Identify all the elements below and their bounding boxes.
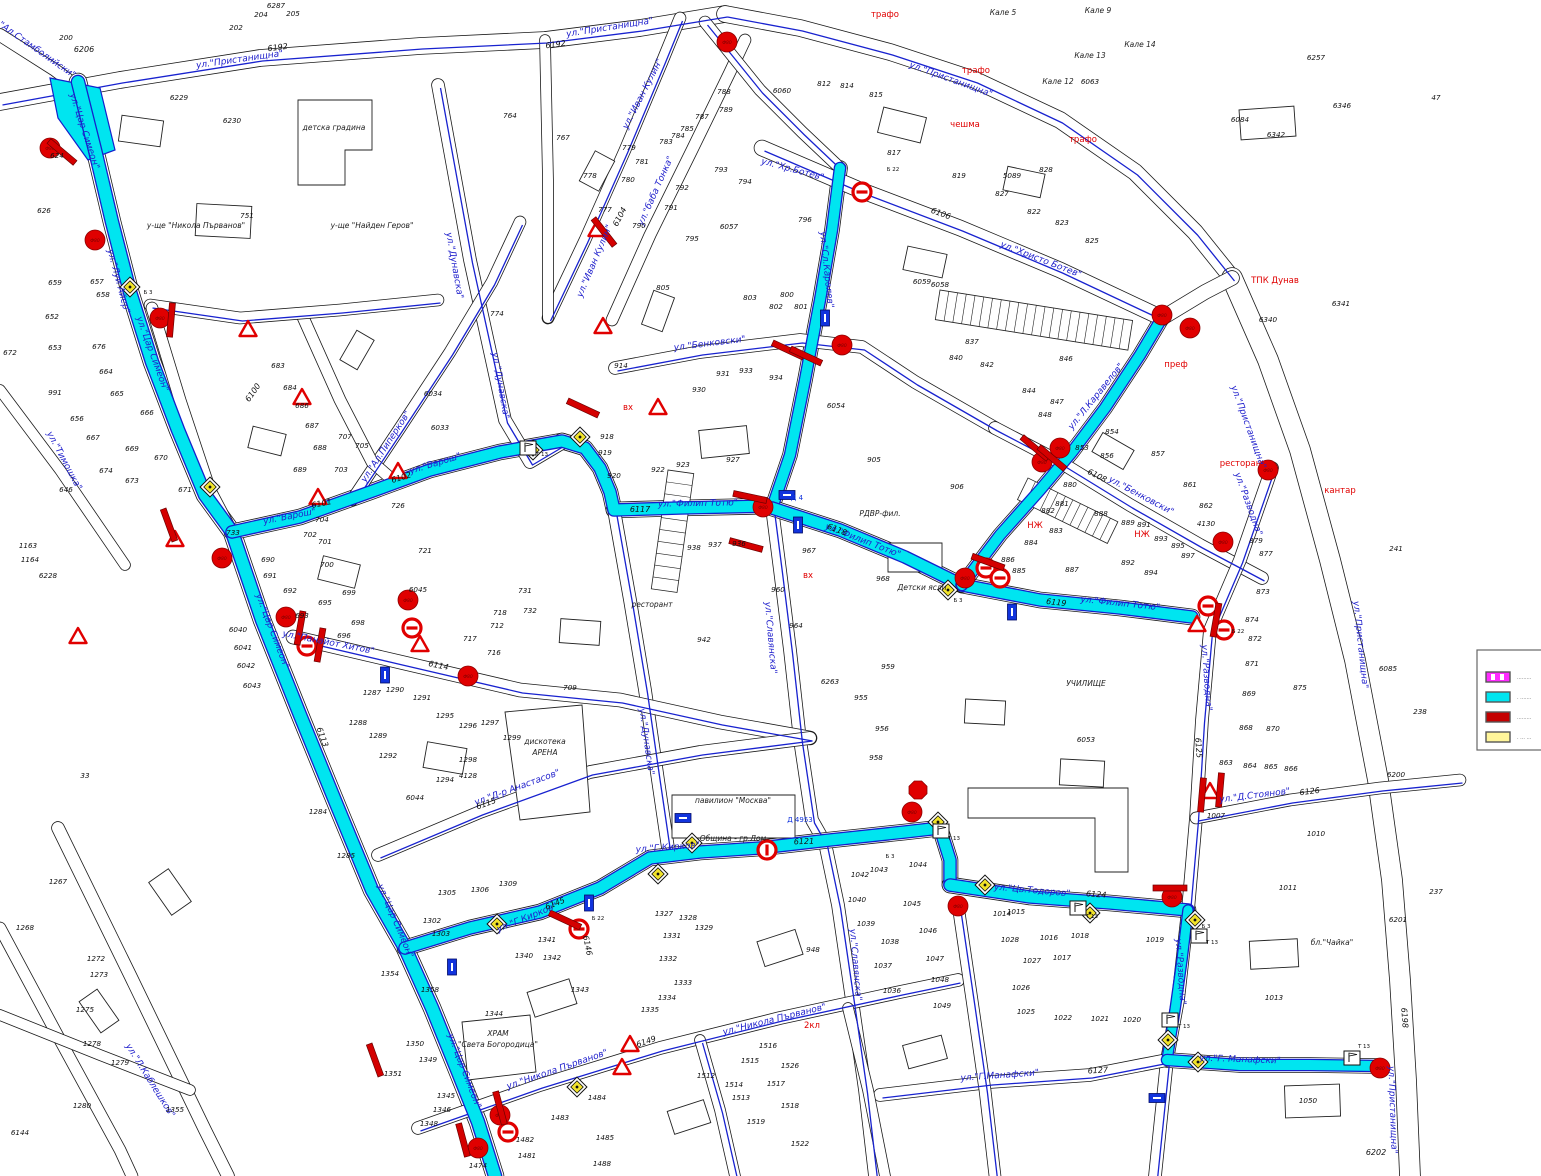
parcel-number: 700 — [320, 560, 334, 569]
building — [1249, 939, 1298, 969]
parcel-number: 6053 — [1077, 735, 1096, 744]
parcel-number: 6045 — [409, 585, 428, 594]
poi-label: УЧИЛИЩЕ — [1066, 679, 1106, 688]
parcel-number: 780 — [621, 175, 635, 184]
parcel-number: 881 — [1055, 499, 1069, 508]
no-entry-marker — [403, 619, 421, 637]
parcel-number: 646 — [59, 485, 73, 494]
hydrant-code: Ф80 — [1375, 1066, 1385, 1072]
parcel-number: 6229 — [170, 93, 189, 102]
parcel-number: 886 — [1001, 555, 1015, 564]
building — [699, 426, 750, 459]
no-entry-bar — [765, 845, 768, 856]
parcel-number: 895 — [1171, 541, 1185, 550]
parcel-number: 959 — [881, 662, 895, 671]
parcel-number: 862 — [1199, 501, 1213, 510]
t-square-box — [1344, 1051, 1360, 1065]
parcel-number: 689 — [293, 465, 307, 474]
shaft-blue-dash — [1011, 608, 1013, 616]
parcel-number: 664 — [99, 367, 113, 376]
parcel-number: 842 — [980, 360, 994, 369]
parcel-number: 1348 — [420, 1119, 439, 1128]
parcel-number: 1164 — [21, 555, 40, 564]
parcel-number: 785 — [680, 124, 694, 133]
marker-code-label: Т 13 — [1177, 1024, 1191, 1030]
no-entry-bar — [995, 576, 1006, 579]
parcel-number: 1285 — [337, 851, 356, 860]
parcel-number: 1350 — [406, 1039, 425, 1048]
parcel-number: 1278 — [83, 1039, 102, 1048]
parcel-number: 683 — [271, 361, 285, 370]
road-id-label: 6117 — [630, 505, 651, 514]
parcel-number: 691 — [263, 571, 277, 580]
parcel-number: 6063 — [1081, 77, 1100, 86]
marker-code-label: Б 22 — [887, 167, 900, 173]
poi-label: Детски ясли — [896, 583, 946, 592]
parcel-number: 670 — [154, 453, 168, 462]
shaft-blue-marker — [675, 814, 691, 823]
parcel-number: 767 — [556, 133, 570, 142]
parcel-number: 891 — [1137, 520, 1151, 529]
parcel-number: 1040 — [848, 895, 867, 904]
parcel-number: 666 — [140, 408, 154, 417]
parcel-number: 1334 — [658, 993, 677, 1002]
parcel-number: 6085 — [1379, 664, 1398, 673]
poi-label: у-ще "Найден Геров" — [330, 221, 414, 230]
shaft-blue-marker — [1149, 1094, 1165, 1103]
shaft-blue-marker — [794, 517, 803, 533]
parcel-number: 791 — [664, 203, 678, 212]
parcel-number: 1020 — [1123, 1015, 1142, 1024]
parcel-number: 948 — [806, 945, 820, 954]
parcel-number: 968 — [876, 574, 890, 583]
parcel-number: 1517 — [767, 1079, 786, 1088]
parcel-number: 658 — [96, 290, 110, 299]
parcel-number: 1048 — [931, 975, 950, 984]
parcel-number: 1331 — [663, 931, 681, 940]
hydrant-marker: Ф80 — [85, 230, 105, 250]
parcel-number: 1026 — [1012, 983, 1031, 992]
building — [1059, 759, 1104, 787]
parcel-number: 869 — [1242, 689, 1256, 698]
parcel-number: 812 — [817, 79, 831, 88]
parcel-number: 827 — [995, 189, 1009, 198]
parcel-number: 6340 — [1259, 315, 1278, 324]
parcel-number: 803 — [743, 293, 757, 302]
parcel-number: 1022 — [1054, 1013, 1073, 1022]
parcel-number: 1284 — [309, 807, 328, 816]
parcel-number: 956 — [875, 724, 889, 733]
parcel-number: 6084 — [1231, 115, 1250, 124]
parcel-number: 1291 — [413, 693, 431, 702]
parcel-number: 1295 — [436, 711, 455, 720]
parcel-number: 696 — [337, 631, 351, 640]
road-id-label: 6125 — [1193, 737, 1203, 758]
hydrant-code: Ф80 — [463, 674, 473, 680]
parcel-number: 815 — [869, 90, 883, 99]
parcel-number: 885 — [1012, 566, 1026, 575]
parcel-number: 1518 — [781, 1101, 800, 1110]
hydrant-code: Ф80 — [1185, 326, 1195, 332]
parcel-number: 1027 — [1023, 956, 1042, 965]
hydrant-marker: Ф80 — [276, 607, 296, 627]
utility-red-label: ресторант — [1220, 459, 1267, 469]
no-entry-marker — [499, 1123, 517, 1141]
no-entry-bar — [981, 566, 992, 569]
parcel-number: 1299 — [503, 733, 522, 742]
poi-label: "Света Богородица" — [458, 1040, 538, 1049]
parcel-number: 698 — [351, 618, 365, 627]
parcel-number: 1306 — [471, 885, 490, 894]
utility-red-label: 2кл — [804, 1021, 820, 1031]
parcel-number: 790 — [632, 221, 646, 230]
parcel-number: 6042 — [237, 661, 256, 670]
parcel-number: 1016 — [1040, 933, 1059, 942]
parcel-number: 774 — [490, 309, 504, 318]
hydrant-marker: Ф80 — [902, 802, 922, 822]
parcel-number: 802 — [769, 302, 783, 311]
marker-code-label: Т 13 — [1357, 1044, 1371, 1050]
road-id-label: 6127 — [1087, 1065, 1109, 1075]
parcel-number: 840 — [949, 353, 963, 362]
parcel-number: 960 — [771, 585, 785, 594]
parcel-number: 671 — [178, 485, 192, 494]
parcel-number: 875 — [1293, 683, 1307, 692]
parcel-number: 6200 — [1387, 770, 1406, 779]
red-bar-marker — [1153, 885, 1187, 891]
parcel-number: 922 — [651, 465, 665, 474]
parcel-number: 626 — [37, 206, 51, 215]
shaft-blue-marker — [1008, 604, 1017, 620]
parcel-number: 4130 — [1197, 519, 1216, 528]
parcel-number: 693 — [295, 611, 309, 620]
parcel-number: 817 — [887, 148, 901, 157]
parcel-number: 6144 — [11, 1128, 30, 1137]
parcel-number: 200 — [59, 33, 73, 42]
parcel-number: 1049 — [933, 1001, 952, 1010]
parcel-number: 905 — [867, 455, 881, 464]
parcel-number: 1305 — [438, 888, 457, 897]
parcel-number: 1013 — [1265, 993, 1284, 1002]
map-canvas[interactable]: Ф80Ф80Ф80Ф80Ф80Ф80Ф80Ф80Ф80Ф80Ф80Ф80Ф80Ф… — [0, 0, 1541, 1176]
parcel-number: 1273 — [90, 970, 109, 979]
parcel-number: 1522 — [791, 1139, 810, 1148]
parcel-number: 704 — [315, 515, 329, 524]
parcel-number: 892 — [1121, 558, 1135, 567]
parcel-number: 688 — [313, 443, 327, 452]
parcel-number: 6228 — [39, 571, 58, 580]
parcel-number: 1015 — [1007, 907, 1026, 916]
hydrant-code: Ф80 — [90, 238, 100, 244]
parcel-number: 6263 — [821, 677, 840, 686]
utility-red-label: трафо — [1069, 135, 1097, 145]
utility-red-label: НЖ — [1027, 521, 1043, 531]
parcel-number: 686 — [295, 401, 309, 410]
poi-label: Кале 9 — [1085, 6, 1112, 15]
parcel-number: 1309 — [499, 879, 518, 888]
parcel-number: 652 — [45, 312, 59, 321]
parcel-number: 964 — [789, 621, 803, 630]
parcel-number: 1474 — [469, 1161, 488, 1170]
parcel-number: 1513 — [732, 1093, 751, 1102]
parcel-number: 937 — [708, 540, 722, 549]
parcel-number: 819 — [952, 171, 966, 180]
parcel-number: 6043 — [243, 681, 262, 690]
parcel-number: 1010 — [1307, 829, 1326, 838]
parcel-number: 6044 — [406, 793, 425, 802]
hydrant-code: Ф80 — [1218, 540, 1228, 546]
parcel-number: 1007 — [1207, 811, 1226, 820]
legend-item-label: ········· — [1517, 716, 1532, 722]
t-square-marker — [933, 824, 949, 838]
parcel-number: 822 — [1027, 207, 1041, 216]
parcel-number: 1349 — [419, 1055, 438, 1064]
parcel-number: 6034 — [424, 389, 443, 398]
shaft-blue-dash — [783, 494, 791, 496]
parcel-number: 6054 — [827, 401, 846, 410]
parcel-number: 936 — [732, 539, 746, 548]
parcel-number: 777 — [598, 205, 612, 214]
parcel-number: 857 — [1151, 449, 1165, 458]
parcel-number: 1335 — [641, 1005, 660, 1014]
shaft-blue-dash — [588, 899, 590, 907]
no-entry-marker — [853, 183, 871, 201]
parcel-number: 657 — [90, 277, 104, 286]
utility-red-label: трафо — [871, 10, 899, 20]
parcel-number: 1288 — [349, 718, 368, 727]
parcel-number: 690 — [261, 555, 275, 564]
parcel-number: 624 — [50, 151, 64, 160]
parcel-number: 733 — [226, 528, 240, 537]
parcel-number: 718 — [493, 608, 507, 617]
parcel-number: 726 — [391, 501, 405, 510]
parcel-number: 1485 — [596, 1133, 615, 1142]
parcel-number: 1036 — [883, 986, 902, 995]
parcel-number: 6346 — [1333, 101, 1352, 110]
hydrant-code: Ф80 — [953, 904, 963, 910]
parcel-number: 1292 — [379, 751, 398, 760]
parcel-number: 801 — [794, 302, 808, 311]
parcel-number: 673 — [125, 476, 139, 485]
parcel-number: 927 — [726, 455, 740, 464]
parcel-number: 1272 — [87, 954, 106, 963]
parcel-number: 884 — [1024, 538, 1038, 547]
poi-label: ресторант — [630, 600, 673, 609]
utility-red-label: вх — [623, 403, 633, 413]
road-id-label: 6206 — [74, 45, 94, 54]
hydrant-code: Ф80 — [837, 343, 847, 349]
parcel-number: 716 — [487, 648, 501, 657]
parcel-number: 873 — [1256, 587, 1270, 596]
parcel-number: 1512 — [697, 1071, 716, 1080]
no-entry-bar — [503, 1130, 514, 1133]
parcel-number: 844 — [1022, 386, 1036, 395]
parcel-number: 923 — [676, 460, 690, 469]
parcel-number: 1042 — [851, 870, 870, 879]
parcel-number: 1343 — [571, 985, 590, 994]
parcel-number: 1050 — [1299, 1096, 1318, 1105]
parcel-number: 877 — [1259, 549, 1273, 558]
parcel-number: 1303 — [432, 929, 451, 938]
shaft-blue-dash — [797, 521, 799, 529]
hydrant-marker: Ф80 — [1152, 305, 1172, 325]
parcel-number: 1346 — [433, 1105, 452, 1114]
parcel-number: 1289 — [369, 731, 388, 740]
parcel-number: 814 — [840, 81, 854, 90]
no-entry-marker — [991, 569, 1009, 587]
parcel-number: 1482 — [516, 1135, 535, 1144]
parcel-number: 1514 — [725, 1080, 744, 1089]
poi-label: Кале 14 — [1124, 40, 1155, 49]
map-viewport[interactable]: Ф80Ф80Ф80Ф80Ф80Ф80Ф80Ф80Ф80Ф80Ф80Ф80Ф80Ф… — [0, 0, 1541, 1176]
parcel-number: 828 — [1039, 165, 1053, 174]
hydrant-code: Ф80 — [217, 556, 227, 562]
legend-swatch — [1486, 712, 1510, 722]
parcel-number: 33 — [80, 771, 90, 780]
parcel-number: 656 — [70, 414, 84, 423]
parcel-number: 701 — [318, 537, 332, 546]
parcel-number: 955 — [854, 693, 868, 702]
parcel-number: 1351 — [384, 1069, 402, 1078]
parcel-number: 1515 — [741, 1056, 760, 1065]
t-square-marker — [520, 441, 536, 455]
shaft-blue-dash — [451, 963, 453, 971]
parcel-number: 684 — [283, 383, 297, 392]
parcel-number: 1488 — [593, 1159, 612, 1168]
poi-label: РДВР-фил. — [859, 509, 900, 518]
shaft-blue-dash — [384, 671, 386, 679]
parcel-number: 687 — [305, 421, 319, 430]
parcel-number: 1516 — [759, 1041, 778, 1050]
poi-label: Кале 5 — [990, 8, 1017, 17]
parcel-number: 846 — [1059, 354, 1073, 363]
parcel-number: 795 — [685, 234, 699, 243]
road-id-label: 6198 — [1399, 1007, 1409, 1028]
parcel-number: 1025 — [1017, 1007, 1036, 1016]
parcel-number: 853 — [1075, 443, 1089, 452]
t-square-box — [1191, 929, 1207, 943]
parcel-number: 674 — [99, 466, 113, 475]
parcel-number: 796 — [798, 215, 812, 224]
parcel-number: 6033 — [431, 423, 450, 432]
poi-label: у-ще "Никола Първанов" — [146, 221, 245, 230]
parcel-number: 665 — [110, 389, 124, 398]
hydrant-code: Ф80 — [155, 316, 165, 322]
parcel-number: 707 — [338, 432, 352, 441]
legend-item-label: · ······· — [1517, 696, 1532, 702]
parcel-number: 872 — [1248, 634, 1262, 643]
parcel-number: 204 — [254, 10, 268, 19]
parcel-number: 938 — [687, 543, 701, 552]
parcel-number: 1046 — [919, 926, 938, 935]
parcel-number: 205 — [286, 9, 300, 18]
road-id-label: 6202 — [1366, 1148, 1386, 1157]
parcel-number: 868 — [1239, 723, 1253, 732]
t-square-box — [520, 441, 536, 455]
marker-code-label: Т 13 — [1085, 914, 1099, 920]
building — [118, 115, 163, 147]
parcel-number: 1294 — [436, 775, 455, 784]
parcel-number: 1018 — [1071, 931, 1090, 940]
parcel-number: 1355 — [166, 1105, 185, 1114]
parcel-number: 6059 — [913, 277, 932, 286]
parcel-number: 659 — [48, 278, 62, 287]
parcel-number: 1298 — [459, 755, 478, 764]
parcel-number: 887 — [1065, 565, 1079, 574]
parcel-number: 1332 — [659, 954, 678, 963]
parcel-number: 705 — [355, 441, 369, 450]
t-square-box — [1070, 901, 1086, 915]
parcel-number: 1043 — [870, 865, 889, 874]
parcel-number: 1021 — [1091, 1014, 1109, 1023]
marker-code-label: Б 22 — [592, 916, 605, 922]
parcel-number: 6201 — [1389, 915, 1407, 924]
parcel-number: 805 — [656, 283, 670, 292]
parcel-number: 1329 — [695, 923, 714, 932]
parcel-number: 1484 — [588, 1093, 607, 1102]
hydrant-code: Ф80 — [1167, 895, 1177, 901]
parcel-number: 1268 — [16, 923, 35, 932]
parcel-number: 861 — [1183, 480, 1197, 489]
parcel-number: 699 — [342, 588, 356, 597]
parcel-number: 1028 — [1001, 935, 1020, 944]
t-square-marker — [1191, 929, 1207, 943]
marker-code-label: Б 3 — [885, 854, 895, 860]
parcel-number: 919 — [598, 448, 612, 457]
poi-label: Кале 13 — [1074, 51, 1105, 60]
parcel-number: 47 — [1431, 93, 1441, 102]
hydrant-code: Ф80 — [722, 40, 732, 46]
parcel-number: 672 — [3, 348, 17, 357]
parcel-number: 800 — [780, 290, 794, 299]
parcel-number: 794 — [738, 177, 752, 186]
parcel-number: 6342 — [1267, 130, 1286, 139]
poi-label: Община - гр.Лом — [700, 834, 767, 843]
pipe-code-label: Д 4 — [791, 494, 804, 502]
parcel-number: 1345 — [437, 1091, 456, 1100]
parcel-number: 6257 — [1307, 53, 1326, 62]
hydrant-marker: Ф80 — [468, 1138, 488, 1158]
poi-label: АРЕНА — [531, 748, 557, 757]
parcel-number: 1280 — [73, 1101, 92, 1110]
marker-code-label: Б 3 — [143, 290, 153, 296]
parcel-number: 202 — [229, 23, 243, 32]
poi-label: павилион "Москва" — [695, 796, 771, 805]
legend-item-label: · ··· ··· — [1517, 736, 1532, 742]
parcel-number: 880 — [1063, 480, 1077, 489]
hydrant-marker: Ф80 — [1213, 532, 1233, 552]
utility-red-label: вх — [803, 571, 813, 581]
parcel-number: 888 — [1094, 509, 1108, 518]
parcel-number: 967 — [802, 546, 816, 555]
parcel-number: 894 — [1144, 568, 1158, 577]
parcel-number: 779 — [622, 143, 636, 152]
hydrant-code: Ф80 — [907, 810, 917, 816]
parcel-number: 1342 — [543, 953, 562, 962]
parcel-number: 1340 — [515, 951, 534, 960]
parcel-number: 1045 — [903, 899, 922, 908]
parcel-number: 6058 — [931, 280, 950, 289]
parcel-number: 676 — [92, 342, 106, 351]
parcel-number: 906 — [950, 482, 964, 491]
parcel-number: 893 — [1154, 534, 1168, 543]
parcel-number: 238 — [1413, 707, 1427, 716]
poi-label: Кале 12 — [1042, 77, 1073, 86]
parcel-number: 1279 — [111, 1058, 130, 1067]
parcel-number: 712 — [490, 621, 504, 630]
hydrant-code: Ф80 — [403, 598, 413, 604]
no-entry-marker — [758, 841, 776, 859]
